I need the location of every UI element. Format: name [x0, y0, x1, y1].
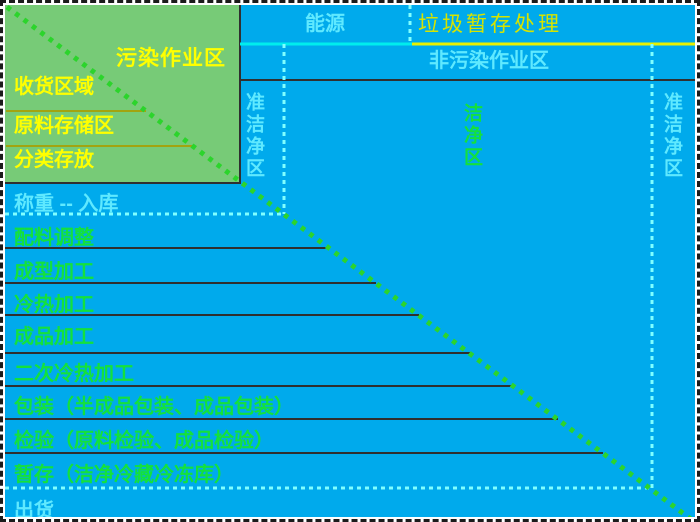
- process-row-packaging: 包装（半成品包装、成品包装）: [14, 390, 294, 419]
- raw-material-storage-label: 原料存储区: [14, 115, 114, 138]
- process-row-shipping: 出货: [14, 494, 54, 517]
- pollution-zone-label: 污染作业区: [116, 47, 226, 71]
- process-row-weigh-inbound: 称重 -- 入库: [14, 187, 118, 216]
- receiving-area-label: 收货区域: [14, 76, 94, 99]
- process-row-secondary-hot-cold: 二次冷热加工: [14, 357, 134, 386]
- non-pollution-zone-label: 非污染作业区: [284, 50, 694, 73]
- diagram-content: 污染作业区 收货区域 原料存储区 分类存放 能源 垃圾暂存处理 非污染作业区 准…: [5, 5, 695, 517]
- factory-zoning-diagram: 污染作业区 收货区域 原料存储区 分类存放 能源 垃圾暂存处理 非污染作业区 准…: [0, 0, 700, 522]
- sorted-storage-label: 分类存放: [14, 149, 94, 172]
- process-row-temp-storage: 暂存（洁净冷藏冷冻库）: [14, 458, 234, 487]
- process-row-inspection: 检验（原料检验、成品检验）: [14, 424, 274, 453]
- quasi-clean-zone-left-label: 准洁净区: [244, 92, 263, 180]
- process-row-hot-cold: 冷热加工: [14, 288, 94, 317]
- clean-zone-label: 洁净区: [462, 103, 481, 169]
- process-row-forming: 成型加工: [14, 255, 94, 284]
- energy-label: 能源: [240, 13, 410, 36]
- process-row-finished-goods: 成品加工: [14, 320, 94, 349]
- garbage-storage-label: 垃圾暂存处理: [418, 12, 562, 36]
- quasi-clean-zone-right-label: 准洁净区: [662, 92, 681, 180]
- diagram-background: 污染作业区 收货区域 原料存储区 分类存放 能源 垃圾暂存处理 非污染作业区 准…: [5, 5, 695, 517]
- process-row-ingredient-adjust: 配料调整: [14, 221, 94, 250]
